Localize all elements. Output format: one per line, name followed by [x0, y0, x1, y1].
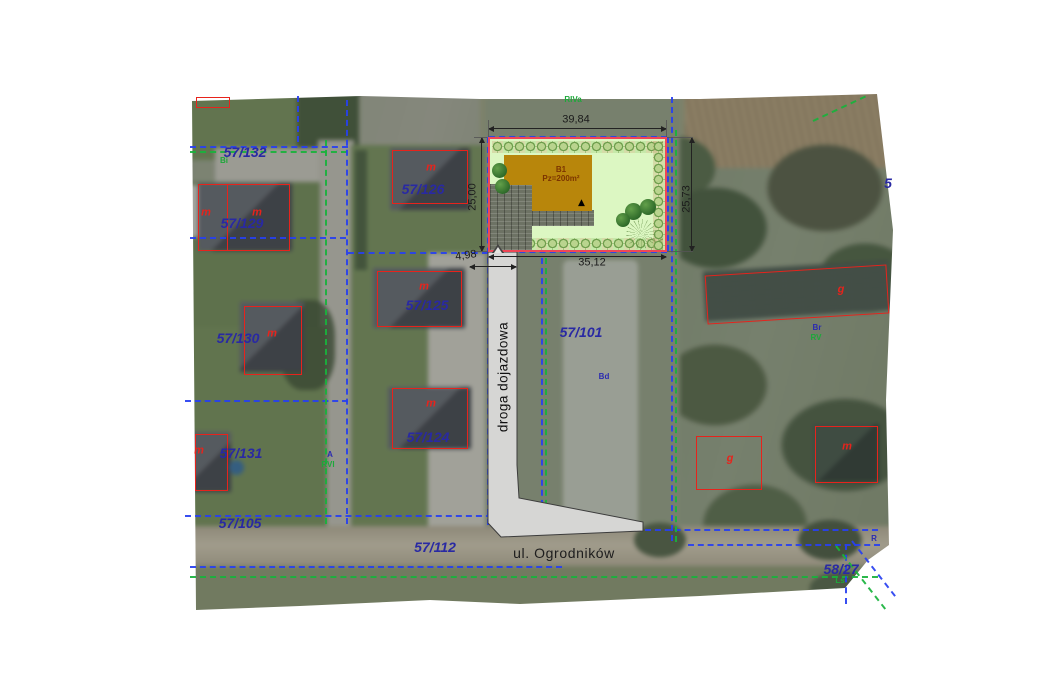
photo-texture [785, 560, 900, 615]
paved-driveway [532, 210, 594, 226]
photo-texture [355, 150, 367, 270]
photo-texture [198, 183, 292, 251]
photo-texture [240, 302, 304, 372]
photo-texture [813, 424, 879, 482]
tree-icon [640, 199, 656, 215]
building-area: Pz=200m² [516, 174, 606, 183]
photo-texture [390, 148, 470, 210]
plot-tree-border-top [492, 141, 663, 153]
photo-texture [388, 387, 471, 449]
tree-icon [492, 163, 507, 178]
photo-texture [215, 148, 320, 182]
access-road-surface [488, 252, 643, 537]
building-b1-label: B1 Pz=200m² [516, 165, 606, 183]
sketch-tree-icon [626, 219, 656, 249]
paved-driveway [490, 184, 532, 250]
tree-icon [495, 179, 510, 194]
photo-texture [191, 432, 231, 492]
site-plan-canvas: B1 Pz=200m² ▲ ul. Ogrodników droga dojaz… [0, 0, 1050, 675]
entrance-marker-icon: ▲ [578, 199, 585, 208]
photo-texture [373, 268, 465, 328]
access-road [486, 250, 651, 545]
design-plot: B1 Pz=200m² ▲ [488, 137, 667, 252]
building-id: B1 [516, 165, 606, 174]
photo-texture [229, 460, 244, 475]
